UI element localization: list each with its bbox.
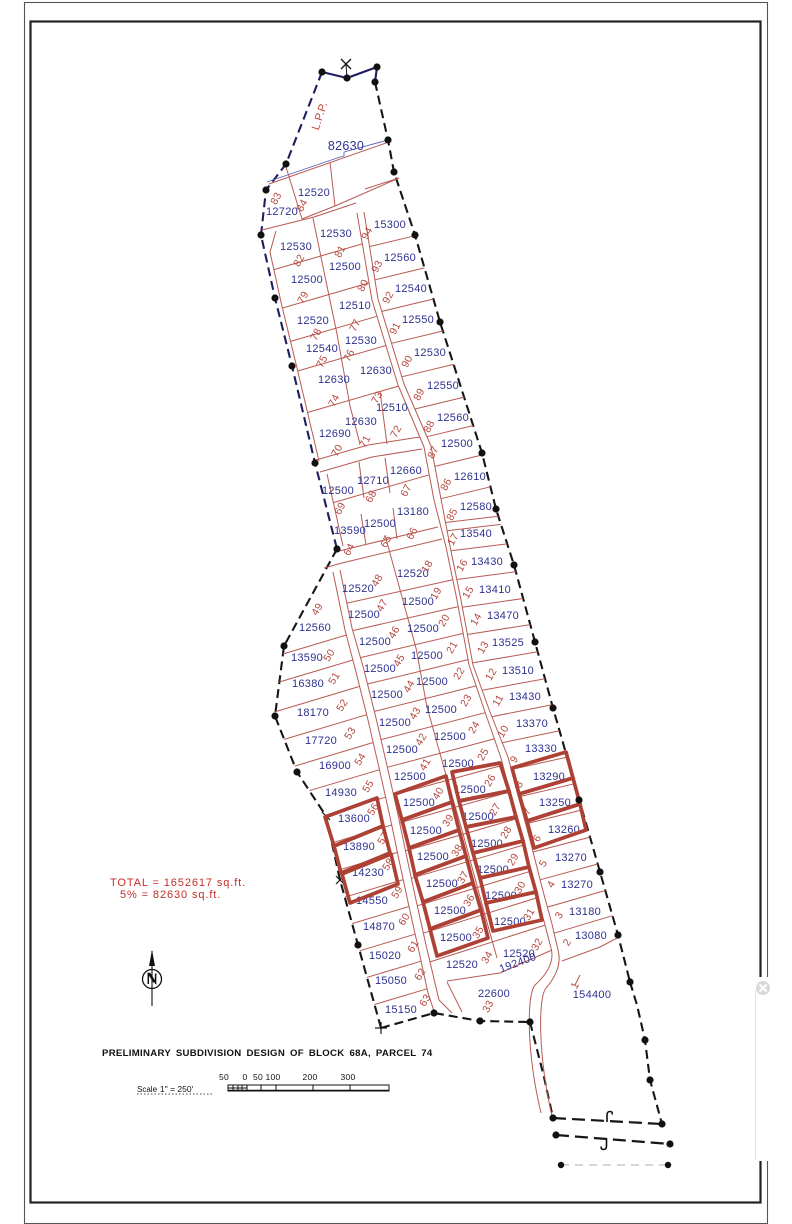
svg-text:12520: 12520	[446, 959, 478, 971]
svg-text:12500: 12500	[410, 825, 442, 837]
svg-text:12500: 12500	[379, 717, 411, 729]
svg-text:12500: 12500	[426, 878, 458, 890]
svg-text:13600: 13600	[338, 813, 370, 825]
svg-text:13330: 13330	[525, 743, 557, 755]
svg-text:13470: 13470	[487, 610, 519, 622]
svg-text:12610: 12610	[454, 471, 486, 483]
svg-text:5% = 82630 sq.ft.: 5% = 82630 sq.ft.	[120, 889, 221, 901]
svg-text:15050: 15050	[375, 975, 407, 987]
svg-text:12500: 12500	[407, 623, 439, 635]
svg-text:12500: 12500	[425, 704, 457, 716]
svg-text:12500: 12500	[364, 518, 396, 530]
svg-text:16900: 16900	[319, 760, 351, 772]
svg-text:13590: 13590	[334, 525, 366, 537]
svg-text:17720: 17720	[305, 735, 337, 747]
svg-text:14870: 14870	[363, 921, 395, 933]
svg-text:12690: 12690	[319, 428, 351, 440]
svg-text:Scale: Scale	[137, 1085, 158, 1094]
svg-text:14930: 14930	[325, 787, 357, 799]
svg-text:12580: 12580	[460, 501, 492, 513]
svg-text:13590: 13590	[291, 652, 323, 664]
svg-text:12560: 12560	[384, 252, 416, 264]
svg-text:50: 50	[219, 1072, 229, 1082]
svg-text:PRELIMINARY SUBDIVISION DESIGN: PRELIMINARY SUBDIVISION DESIGN OF BLOCK …	[102, 1048, 433, 1059]
svg-text:12520: 12520	[298, 187, 330, 199]
svg-text:50: 50	[253, 1072, 263, 1082]
svg-text:13410: 13410	[479, 584, 511, 596]
svg-text:13540: 13540	[460, 528, 492, 540]
svg-text:12500: 12500	[359, 636, 391, 648]
svg-text:16380: 16380	[292, 678, 324, 690]
svg-text:12500: 12500	[440, 932, 472, 944]
svg-text:13525: 13525	[492, 637, 524, 649]
svg-text:12500: 12500	[434, 731, 466, 743]
svg-text:12630: 12630	[345, 416, 377, 428]
svg-text:300: 300	[340, 1072, 355, 1082]
svg-text:12500: 12500	[411, 650, 443, 662]
svg-text:13080: 13080	[575, 930, 607, 942]
svg-text:200: 200	[302, 1072, 317, 1082]
svg-text:12560: 12560	[437, 412, 469, 424]
svg-text:13510: 13510	[502, 665, 534, 677]
svg-text:13430: 13430	[471, 556, 503, 568]
svg-text:13270: 13270	[555, 852, 587, 864]
svg-text:12500: 12500	[371, 689, 403, 701]
svg-text:15150: 15150	[385, 1004, 417, 1016]
svg-text:12530: 12530	[320, 228, 352, 240]
svg-text:12500: 12500	[416, 676, 448, 688]
svg-text:12720: 12720	[266, 206, 298, 218]
svg-text:12510: 12510	[376, 402, 408, 414]
svg-text:13430: 13430	[509, 691, 541, 703]
svg-text:12500: 12500	[329, 261, 361, 273]
svg-text:12530: 12530	[345, 335, 377, 347]
svg-text:12510: 12510	[339, 300, 371, 312]
svg-text:15020: 15020	[369, 950, 401, 962]
svg-text:12500: 12500	[291, 274, 323, 286]
svg-text:12630: 12630	[360, 365, 392, 377]
svg-text:82630: 82630	[328, 139, 364, 153]
svg-text:12530: 12530	[280, 241, 312, 253]
svg-text:12660: 12660	[390, 465, 422, 477]
svg-text:0: 0	[242, 1072, 247, 1082]
svg-text:1" = 250': 1" = 250'	[160, 1084, 194, 1094]
svg-text:12500: 12500	[434, 905, 466, 917]
svg-text:12560: 12560	[299, 622, 331, 634]
svg-text:12500: 12500	[364, 663, 396, 675]
svg-text:13890: 13890	[343, 841, 375, 853]
svg-text:100: 100	[265, 1072, 280, 1082]
svg-text:12500: 12500	[348, 609, 380, 621]
svg-text:12710: 12710	[357, 475, 389, 487]
svg-text:TOTAL = 1652617 sq.ft.: TOTAL = 1652617 sq.ft.	[110, 877, 246, 889]
svg-text:13270: 13270	[561, 879, 593, 891]
svg-text:12500: 12500	[441, 438, 473, 450]
svg-text:12520: 12520	[342, 583, 374, 595]
svg-text:12500: 12500	[402, 596, 434, 608]
svg-text:13180: 13180	[397, 506, 429, 518]
svg-text:13370: 13370	[516, 718, 548, 730]
svg-text:12500: 12500	[394, 771, 426, 783]
svg-text:12630: 12630	[318, 374, 350, 386]
svg-text:12500: 12500	[403, 797, 435, 809]
svg-text:12500: 12500	[417, 851, 449, 863]
svg-text:13180: 13180	[569, 906, 601, 918]
svg-text:12550: 12550	[402, 314, 434, 326]
svg-text:12500: 12500	[386, 744, 418, 756]
svg-text:12550: 12550	[427, 380, 459, 392]
svg-text:12540: 12540	[395, 283, 427, 295]
svg-text:22600: 22600	[478, 988, 510, 1000]
svg-text:12520: 12520	[297, 315, 329, 327]
svg-text:12540: 12540	[306, 343, 338, 355]
svg-text:12500: 12500	[322, 485, 354, 497]
svg-text:15300: 15300	[374, 219, 406, 231]
svg-text:12530: 12530	[414, 347, 446, 359]
svg-text:18170: 18170	[297, 707, 329, 719]
